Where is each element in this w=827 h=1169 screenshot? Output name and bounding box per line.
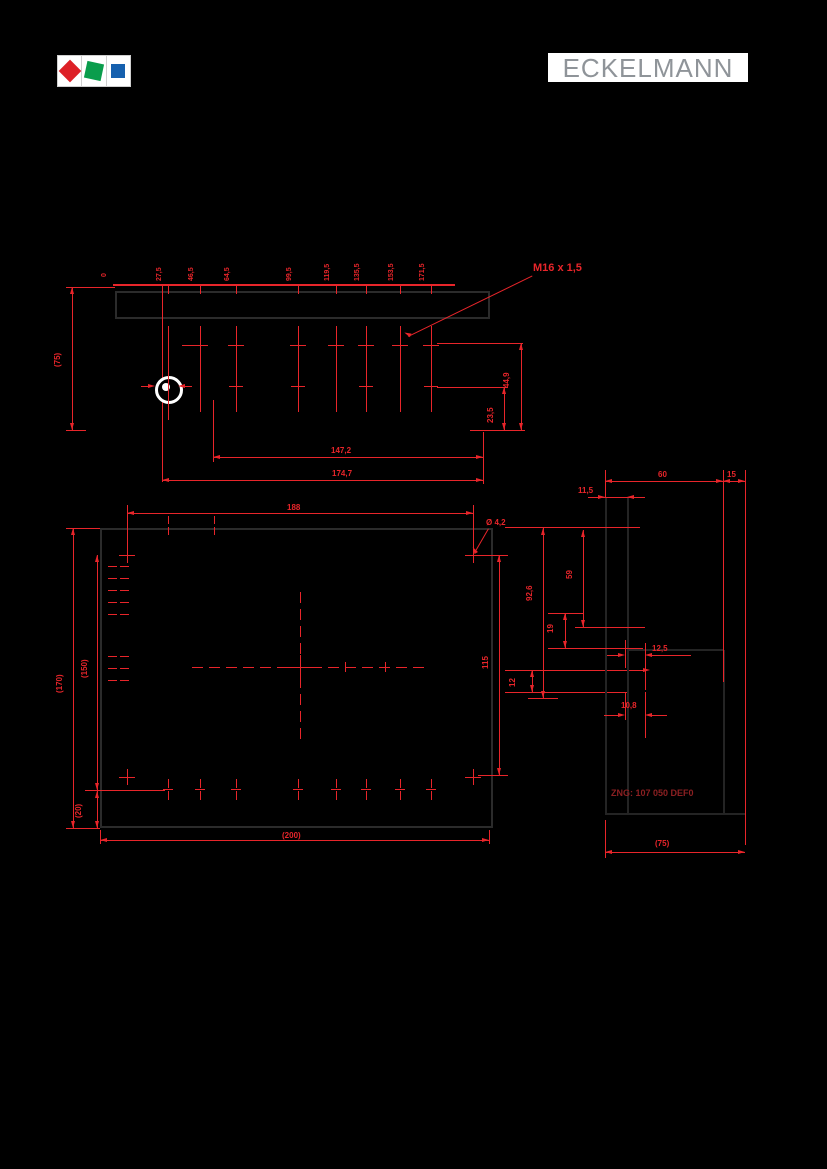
edge-slot-mark <box>108 656 117 657</box>
arrow-down-icon <box>497 768 501 775</box>
bottom-hole-mark <box>195 789 205 790</box>
dim-20-label: (20) <box>74 804 83 818</box>
bottom-hole-mark <box>200 779 201 788</box>
logo-red-cell <box>58 56 82 86</box>
dim-449-label: 44,9 <box>502 372 511 388</box>
extension-line <box>548 648 643 649</box>
hole-cross-row-a <box>182 345 194 346</box>
hole-cross-row-a <box>392 345 408 346</box>
gland-centerline <box>200 326 201 412</box>
dim-12-label: 12 <box>508 678 517 687</box>
extension-line <box>505 692 627 693</box>
brand-wordmark: ECKELMANN <box>548 53 748 82</box>
dim-75-left-line <box>72 287 73 430</box>
edge-slot-mark <box>120 566 129 567</box>
side-profile-line <box>627 649 723 651</box>
drawing-page: ECKELMANN 0 (75) 44,9 23,5 M16 x 1,5 147… <box>0 0 827 1169</box>
arrow-up-icon <box>502 387 506 394</box>
dim-170-line <box>73 528 74 828</box>
top-hole-mark <box>168 527 169 535</box>
gland-scale-tick <box>298 286 299 294</box>
center-tick <box>385 662 386 672</box>
dim-75-depth-line <box>605 852 745 853</box>
dim-115-label: 115 <box>481 656 490 669</box>
arrow-down-icon <box>519 423 523 430</box>
dim-125-label: 12,5 <box>652 644 668 653</box>
corner-hole-cross <box>473 769 474 785</box>
datum-circle-icon <box>155 376 183 404</box>
gland-centerline <box>336 326 337 412</box>
dim-108-label: 10,8 <box>621 701 637 710</box>
red-square-icon <box>58 60 81 83</box>
arrow-left-icon <box>627 495 634 499</box>
bottom-hole-mark <box>236 779 237 788</box>
dim-115off-line <box>588 497 645 498</box>
extension-line <box>66 828 100 829</box>
dim-170-label: (170) <box>55 674 64 693</box>
bottom-hole-mark <box>336 791 337 800</box>
dim-59-line <box>583 530 584 627</box>
gland-centerline <box>168 326 169 420</box>
dim-1747-line <box>162 480 483 481</box>
arrow-down-icon <box>563 641 567 648</box>
dim-926-label: 92,6 <box>525 585 534 601</box>
leader-arrow-icon <box>403 331 411 338</box>
dim-150-label: (150) <box>80 659 89 678</box>
green-square-icon <box>84 61 104 81</box>
plate-top-view-outline <box>115 291 490 319</box>
arrow-left-icon <box>645 653 652 657</box>
dim-1472-label: 147,2 <box>331 446 351 455</box>
extension-line <box>505 527 640 528</box>
extension-line <box>723 470 724 682</box>
top-hole-mark <box>214 527 215 535</box>
side-profile-line <box>605 497 607 815</box>
bottom-hole-mark <box>361 789 371 790</box>
arrow-left-icon <box>213 455 220 459</box>
dim-188-label: 188 <box>287 503 300 512</box>
gland-scale-tick <box>168 286 169 294</box>
center-cross <box>300 655 301 679</box>
edge-slot-mark <box>120 680 129 681</box>
bottom-hole-mark <box>298 791 299 800</box>
bottom-hole-mark <box>395 789 405 790</box>
arrow-down-icon <box>95 821 99 828</box>
gland-scale-label: 153,5 <box>388 263 396 281</box>
arrow-right-icon <box>598 495 605 499</box>
dim-75-depth-label: (75) <box>655 839 669 848</box>
corner-hole-cross <box>127 769 128 785</box>
arrow-down-icon <box>502 423 506 430</box>
arrow-up-icon <box>95 555 99 562</box>
center-tick <box>345 662 346 672</box>
extension-line <box>478 555 508 556</box>
corner-hole-cross <box>473 547 474 563</box>
edge-slot-mark <box>120 590 129 591</box>
arrow-down-icon <box>71 821 75 828</box>
arrow-up-icon <box>563 613 567 620</box>
dim-19-label: 19 <box>546 624 555 633</box>
extension-line <box>483 432 484 484</box>
gland-centerline <box>431 326 432 412</box>
edge-slot-mark <box>120 614 129 615</box>
thread-label: M16 x 1,5 <box>533 264 582 273</box>
bottom-hole-mark <box>231 789 241 790</box>
gland-centerline <box>236 326 237 412</box>
extension-line <box>437 387 508 388</box>
extension-line <box>478 775 508 776</box>
company-logo-icon <box>57 55 131 87</box>
gland-scale-label: 171,5 <box>419 263 427 281</box>
bottom-hole-mark <box>331 789 341 790</box>
gland-scale-tick <box>366 286 367 294</box>
dim-115-line <box>499 555 500 775</box>
extension-line <box>213 400 214 462</box>
gland-scale-tick <box>336 286 337 294</box>
edge-slot-mark <box>120 578 129 579</box>
extension-line <box>528 698 558 699</box>
gland-scale-label: 46,5 <box>188 267 196 281</box>
dim-60-line <box>605 481 723 482</box>
arrow-left-icon <box>178 384 185 388</box>
arrow-right-icon <box>618 653 625 657</box>
arrow-up-icon <box>70 287 74 294</box>
gland-scale-tick <box>200 286 201 294</box>
edge-slot-mark <box>120 668 129 669</box>
hole-cross-row-a <box>328 345 344 346</box>
arrow-down-icon <box>530 685 534 692</box>
extension-line <box>645 643 646 690</box>
edge-slot-mark <box>108 614 117 615</box>
extension-line <box>605 470 606 497</box>
arrow-up-icon <box>95 791 99 798</box>
bottom-hole-mark <box>366 791 367 800</box>
dim-15-label: 15 <box>727 470 736 479</box>
dim-200-line <box>100 840 489 841</box>
arrow-up-icon <box>71 528 75 535</box>
dim-449-line <box>521 343 522 430</box>
arrow-left-icon <box>162 478 169 482</box>
arrow-down-icon <box>95 783 99 790</box>
arrow-down-icon <box>70 423 74 430</box>
blue-square-icon <box>111 64 125 78</box>
extension-line <box>489 830 490 844</box>
gland-centerline <box>400 326 401 412</box>
arrow-left-icon <box>645 713 652 717</box>
baseline-extension <box>470 430 525 431</box>
arrow-right-icon <box>482 838 489 842</box>
brand-text: ECKELMANN <box>563 55 734 81</box>
arrow-left-icon <box>605 850 612 854</box>
edge-slot-mark <box>120 656 129 657</box>
gland-centerline <box>298 326 299 412</box>
dim-60-label: 60 <box>658 470 667 479</box>
logo-blue-cell <box>107 56 130 86</box>
hole-cross-row-a <box>423 345 439 346</box>
arrow-up-icon <box>581 530 585 537</box>
arrow-left-icon <box>605 479 612 483</box>
plate-front-view-outline <box>100 528 493 828</box>
hole-cross-row-a <box>228 345 244 346</box>
dim-1747-label: 174,7 <box>332 469 352 478</box>
hole-cross-row-b <box>229 386 243 387</box>
hole-diameter-label: Ø 4,2 <box>486 518 506 527</box>
gland-scale-tick <box>400 286 401 294</box>
bottom-hole-mark <box>431 779 432 788</box>
dim-200-label: (200) <box>282 831 301 840</box>
dim-75-left-label: (75) <box>53 353 62 367</box>
edge-slot-mark <box>108 566 117 567</box>
gland-scale-label: 27,5 <box>156 267 164 281</box>
bottom-hole-mark <box>200 791 201 800</box>
hole-cross-row-b <box>291 386 305 387</box>
extension-line <box>625 640 626 668</box>
bottom-hole-mark <box>400 791 401 800</box>
arrow-right-icon <box>738 850 745 854</box>
gland-scale-label: 119,5 <box>324 264 332 281</box>
hole-cross-row-a <box>290 345 306 346</box>
logo-green-cell <box>82 56 106 86</box>
arrow-left-icon <box>723 479 730 483</box>
dim-59-label: 59 <box>565 570 574 579</box>
arrow-left-icon <box>127 511 134 515</box>
hole-cross-row-a <box>358 345 374 346</box>
bottom-hole-mark <box>431 791 432 800</box>
dim-188-line <box>127 513 473 514</box>
bottom-hole-mark <box>336 779 337 788</box>
arrow-right-icon <box>716 479 723 483</box>
extension-line <box>437 343 523 344</box>
bottom-hole-mark <box>298 779 299 788</box>
extension-line <box>745 470 746 845</box>
dim-1472-line <box>213 457 483 458</box>
top-hole-mark <box>214 516 215 524</box>
bottom-hole-mark <box>168 791 169 800</box>
arrow-right-icon <box>738 479 745 483</box>
side-profile-line <box>627 497 629 815</box>
hole-cross-row-b <box>359 386 373 387</box>
dim-235-label: 23,5 <box>486 407 495 423</box>
arrow-up-icon <box>519 343 523 350</box>
edge-slot-mark <box>108 668 117 669</box>
top-scale-line <box>113 284 455 286</box>
arrow-down-icon <box>581 620 585 627</box>
edge-slot-mark <box>108 680 117 681</box>
bottom-hole-mark <box>400 779 401 788</box>
bottom-hole-mark <box>426 789 436 790</box>
gland-scale-label: 64,5 <box>224 267 232 281</box>
arrow-right-icon <box>618 713 625 717</box>
gland-scale-tick <box>431 286 432 294</box>
hole-cross-row-b <box>424 386 438 387</box>
bottom-hole-mark <box>168 779 169 788</box>
gland-scale-label: 99,5 <box>286 267 294 281</box>
gland-scale-tick <box>236 286 237 294</box>
dim-150-line <box>97 555 98 790</box>
arrow-right-icon <box>476 478 483 482</box>
gland-scale-label: 135,5 <box>354 263 362 281</box>
arrow-right-icon <box>466 511 473 515</box>
hole-cross-row-a <box>192 345 208 346</box>
extension-line <box>505 670 645 671</box>
edge-slot-mark <box>108 578 117 579</box>
corner-hole-cross <box>127 547 128 563</box>
top-hole-mark <box>168 516 169 524</box>
arrow-up-icon <box>497 555 501 562</box>
bottom-hole-mark <box>163 789 173 790</box>
arrow-right-icon <box>148 384 155 388</box>
origin-label: 0 <box>101 273 109 277</box>
extension-line <box>66 430 86 431</box>
arrow-down-icon <box>541 691 545 698</box>
bottom-hole-mark <box>293 789 303 790</box>
arrow-left-icon <box>100 838 107 842</box>
edge-slot-mark <box>108 602 117 603</box>
arrow-up-icon <box>530 670 534 677</box>
dim-125-line2 <box>649 655 691 656</box>
bottom-hole-mark <box>236 791 237 800</box>
extension-line <box>575 627 645 628</box>
arrow-up-icon <box>541 528 545 535</box>
edge-slot-mark <box>120 602 129 603</box>
dim-926-line <box>543 528 544 698</box>
bottom-hole-mark <box>366 779 367 788</box>
drawing-number-note: ZNG: 107 050 DEF0 <box>611 789 694 798</box>
dim-115off-label: 11,5 <box>578 486 593 495</box>
arrow-right-icon <box>476 455 483 459</box>
edge-slot-mark <box>108 590 117 591</box>
gland-centerline <box>366 326 367 412</box>
